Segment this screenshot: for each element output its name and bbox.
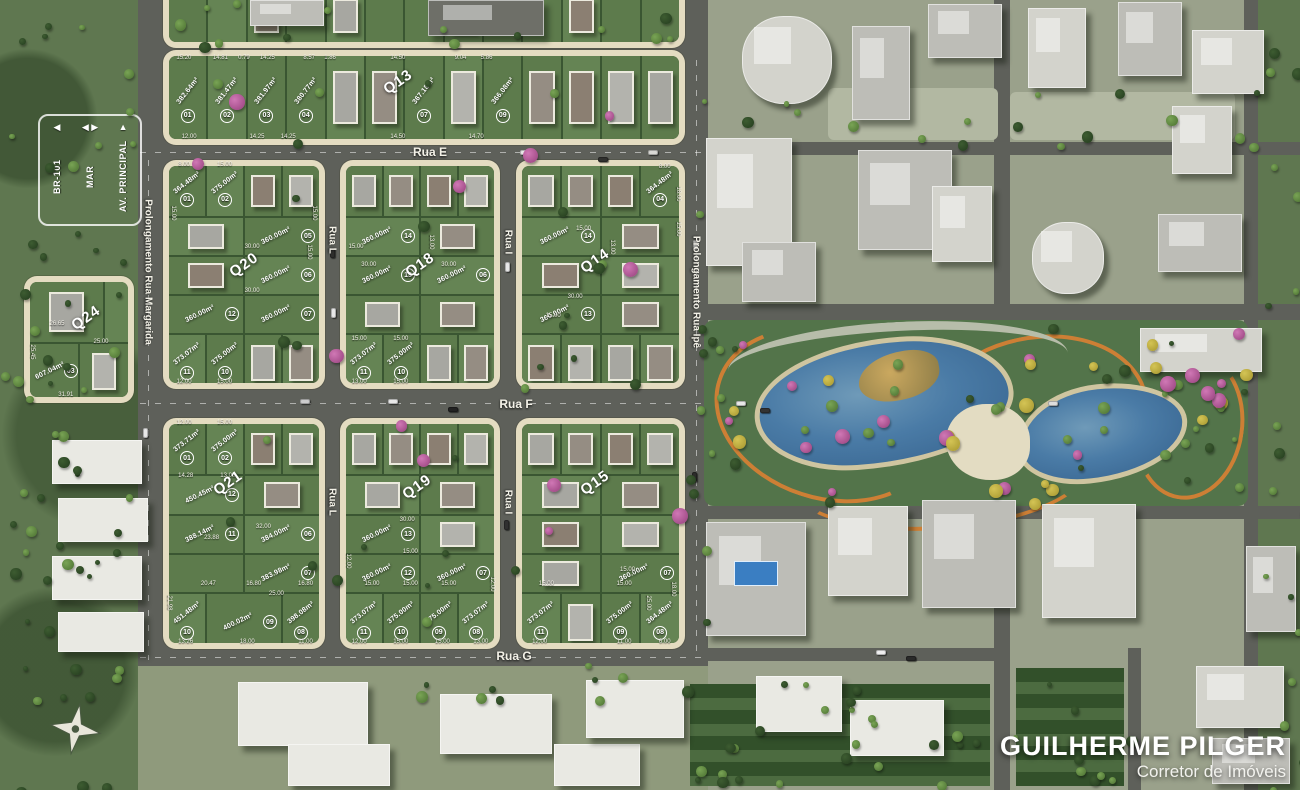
masterplan-map: ◀ BR-101 ◀ ▶ MAR ▲ AV. PRINCIPAL GUILHER… [0, 0, 1300, 790]
tree [1197, 415, 1208, 426]
house [389, 433, 413, 465]
tree [292, 195, 299, 202]
building [238, 682, 368, 746]
swimming-pool [734, 561, 777, 586]
lot [327, 0, 364, 42]
tree [841, 753, 852, 764]
building [1192, 30, 1264, 94]
car [448, 407, 458, 412]
lot: 373.07m²08 [459, 594, 495, 643]
tree [964, 118, 971, 125]
tree [1241, 389, 1247, 395]
house [528, 345, 554, 381]
lot-dimension: 23.88 [204, 535, 219, 541]
tree [42, 34, 48, 40]
lot-number: 09 [496, 109, 510, 123]
house [528, 433, 554, 465]
tree [1098, 402, 1110, 414]
house [647, 433, 673, 465]
tree [65, 300, 71, 306]
lot-area: 375.00m² [387, 341, 416, 366]
tree [1269, 48, 1280, 59]
building [288, 744, 390, 786]
lot [562, 335, 600, 383]
house [569, 0, 594, 33]
tree [26, 526, 36, 536]
lot-number: 09 [613, 626, 627, 640]
lot-dimension: 15.00 [311, 205, 317, 220]
house [251, 175, 276, 207]
tree [1181, 439, 1190, 448]
road [708, 648, 1010, 661]
tree [175, 19, 187, 31]
lot-area: 373.07m² [462, 601, 491, 626]
tree [794, 109, 801, 116]
lot-dimension: 16.80 [246, 581, 261, 587]
lot-area: 375.00m² [606, 601, 635, 626]
car [388, 399, 398, 404]
street-label: Prolongamento Rua Margarida [143, 199, 154, 345]
tree [776, 780, 784, 788]
lot-dimension: 15.00 [306, 244, 312, 259]
building [706, 522, 806, 636]
building [586, 680, 684, 738]
lot-dimension: 14.25 [260, 55, 275, 61]
lot-number: 04 [299, 109, 313, 123]
legend-label: MAR [85, 136, 95, 218]
house [352, 175, 376, 207]
tree [40, 253, 47, 260]
lot-dimension: 25.00 [269, 591, 284, 597]
building [932, 186, 992, 262]
house [568, 604, 594, 640]
tree [695, 777, 701, 783]
lot-dimension: 15.00 [352, 336, 367, 342]
lot: 375.00m²10 [207, 335, 243, 383]
block-grid: 364.48m²04360.00m²14360.00m²13 [522, 166, 679, 383]
lot-dimension: 15.00 [620, 567, 635, 573]
lot: 367.18m²07 [405, 56, 442, 139]
lot-dimension: 14.28 [178, 473, 193, 479]
lot [602, 0, 639, 42]
lot-dimension: 14.50 [390, 134, 405, 140]
building-roof [1036, 18, 1060, 52]
house [647, 345, 673, 381]
tree [826, 400, 838, 412]
tree [442, 550, 449, 557]
tree [846, 698, 856, 708]
tree [853, 686, 862, 695]
tree [697, 406, 705, 414]
block-grid: 607.04m²03 [30, 282, 128, 397]
lot-dimension: 15.00 [403, 549, 418, 555]
lot [562, 594, 600, 643]
lot-area: 367.18m² [412, 76, 437, 105]
tree [800, 442, 812, 454]
lot [602, 257, 680, 294]
street-label: Rua I [503, 230, 514, 254]
house [440, 302, 475, 327]
lot-dimension: 15.00 [364, 581, 379, 587]
street-label: Rua L [327, 488, 338, 516]
lot-dimension: 21.98 [166, 595, 172, 610]
house [389, 175, 413, 207]
lot-dimension: 14.70 [469, 134, 484, 140]
tree [514, 32, 521, 39]
tree [496, 696, 505, 705]
lot-dimension: 15.00 [435, 639, 450, 645]
lot: 373.07m²11 [346, 594, 382, 643]
lot-number: 02 [218, 193, 232, 207]
broker-title: Corretor de Imóveis [1000, 762, 1286, 782]
lot: 451.48m²10 [169, 594, 205, 643]
lot [642, 56, 679, 139]
house [365, 482, 400, 507]
lot: 375.00m²10 [384, 335, 420, 383]
tree [849, 707, 855, 713]
lot-dimension: 25.00 [93, 339, 108, 345]
tree [735, 776, 743, 784]
lot [522, 516, 600, 553]
tree [226, 517, 235, 526]
building-roof [1201, 38, 1231, 65]
block-grid [169, 0, 679, 42]
lot-area: 375.00m² [210, 170, 239, 195]
legend-item: ▲ AV. PRINCIPAL [118, 122, 128, 218]
house [608, 345, 634, 381]
lot-dimension: 12.00 [177, 420, 192, 426]
building [1028, 8, 1086, 88]
tree [667, 36, 673, 42]
tree [20, 489, 28, 497]
lot-number: 11 [534, 626, 548, 640]
tree [1071, 706, 1079, 714]
lot [459, 424, 495, 474]
lot-number: 05 [301, 229, 315, 243]
house [622, 224, 659, 249]
street-label: Rua I [503, 490, 514, 514]
lot: 373.07m²11 [346, 335, 382, 383]
house [451, 71, 476, 124]
lot-area: 375.00m² [387, 601, 416, 626]
tree [1254, 90, 1260, 96]
tree [58, 457, 69, 468]
tree [696, 766, 707, 777]
lot-dimension: 15.00 [546, 313, 561, 319]
lot-area: 375.00m² [210, 429, 239, 454]
lot-dimension: 0.79 [238, 55, 250, 61]
tree [396, 420, 407, 431]
lot-number: 12 [225, 307, 239, 321]
lot-area: 373.07m² [172, 341, 201, 366]
building [922, 500, 1016, 608]
lot-number: 07 [476, 566, 490, 580]
car [300, 399, 310, 404]
tree [730, 458, 742, 470]
lot [346, 296, 419, 333]
lot: 380.77m²04 [287, 56, 324, 139]
lot-number: 07 [660, 566, 674, 580]
lot [562, 424, 600, 474]
building-roof [940, 196, 965, 228]
lot-area: 375.00m² [210, 341, 239, 366]
car [760, 408, 770, 413]
lot: 364.48m²04 [641, 166, 679, 216]
lot-dimension: 18.00 [240, 639, 255, 645]
lot-number: 01 [181, 109, 195, 123]
tree [13, 376, 24, 387]
tree [424, 682, 429, 687]
building [250, 0, 324, 26]
legend-item: ◀ ▶ MAR [82, 122, 98, 218]
building [928, 4, 1002, 58]
lot [169, 218, 243, 255]
lot [641, 424, 679, 474]
lot-area: 400.02m² [222, 612, 253, 632]
tree [9, 134, 14, 139]
lot: 373.71m²01 [169, 424, 205, 474]
block [163, 0, 685, 48]
lot-number: 11 [357, 626, 371, 640]
tree [33, 697, 41, 705]
tree [863, 428, 873, 438]
car [648, 150, 658, 155]
building [58, 612, 144, 652]
building-roof [1126, 12, 1153, 43]
lot-dimension: 30.00 [245, 288, 260, 294]
street-label: Prolongamento Rua Ipê [691, 236, 702, 348]
house [622, 482, 659, 507]
lot [366, 0, 403, 42]
lot-dimension: 15.00 [217, 420, 232, 426]
lot-area: 373.07m² [526, 601, 555, 626]
lot: 607.04m²03 [30, 344, 78, 397]
lot: 398.08m²08 [283, 594, 319, 643]
lot-dimension: 16.80 [298, 581, 313, 587]
lot-number: 02 [220, 109, 234, 123]
lot-number: 09 [432, 626, 446, 640]
lot-dimension: 15.00 [217, 162, 232, 168]
house [622, 522, 659, 547]
branding: GUILHERME PILGER Corretor de Imóveis [1000, 731, 1286, 782]
tree [283, 34, 291, 42]
car [143, 428, 148, 438]
tree [1205, 443, 1214, 452]
lot-dimension: 30.00 [568, 294, 583, 300]
house [608, 433, 634, 465]
tree [1288, 594, 1293, 599]
lot-number: 08 [469, 626, 483, 640]
tree [1162, 391, 1168, 397]
lot: 373.07m²11 [169, 335, 205, 383]
tree [77, 781, 89, 790]
compass-icon [43, 698, 106, 765]
tree [598, 26, 605, 33]
lot-area: 451.48m² [172, 601, 201, 626]
tree [449, 39, 460, 50]
lot-dimension: 15.00 [393, 639, 408, 645]
lot-dimension: 30.00 [400, 517, 415, 523]
lot [384, 166, 420, 216]
tree [52, 431, 58, 437]
lot-dimension: 32.00 [256, 524, 271, 530]
tree [1271, 164, 1278, 171]
tree [62, 559, 73, 570]
lot-number: 13 [401, 527, 415, 541]
lot-dimension: 13.00 [352, 379, 367, 385]
lot: 360.00m²07 [421, 555, 494, 592]
building [1196, 666, 1284, 728]
tree [1233, 328, 1245, 340]
tree [1102, 374, 1112, 384]
tree [660, 13, 672, 25]
building [1118, 2, 1182, 76]
lot-number: 01 [180, 193, 194, 207]
building-roof [860, 38, 884, 78]
house [648, 71, 673, 124]
lot-dimension: 8.57 [303, 55, 315, 61]
tree [58, 431, 69, 442]
tree [871, 721, 878, 728]
lot: 375.00m²09 [602, 594, 640, 643]
tree [1201, 386, 1215, 400]
lot-dimension: 15.00 [170, 205, 176, 220]
lot [602, 56, 639, 139]
lot-dimension: 11.00 [298, 639, 313, 645]
lot-dimension: 13.00 [428, 235, 434, 250]
tree [215, 39, 224, 48]
building [742, 242, 816, 302]
tree [1280, 721, 1289, 730]
tree [787, 381, 797, 391]
tree [686, 475, 696, 485]
lot-area: 360.00m² [539, 226, 570, 246]
tree [991, 404, 1001, 414]
tree [452, 455, 458, 461]
lot-number: 03 [259, 109, 273, 123]
tree [204, 5, 210, 11]
house [251, 345, 276, 381]
tree [332, 575, 343, 586]
house [289, 433, 314, 465]
building [1042, 504, 1136, 618]
house [92, 353, 115, 391]
tree [989, 484, 1002, 497]
lot-area: 364.48m² [172, 170, 201, 195]
lot [346, 424, 382, 474]
lot: 384.00m²06 [245, 516, 319, 553]
road-centerline [696, 60, 697, 660]
lot [346, 166, 382, 216]
tree [1274, 448, 1285, 459]
building [828, 506, 908, 596]
tree [45, 163, 55, 173]
house [289, 345, 314, 381]
lot-dimension: 14.50 [390, 55, 405, 61]
lot-area: 382.64m² [175, 76, 200, 105]
car [1048, 401, 1058, 406]
house [608, 175, 634, 207]
tree [10, 568, 21, 579]
direction-arrow-icon: ◀ [53, 122, 60, 133]
tree [1019, 398, 1034, 413]
tree [547, 478, 561, 492]
tree [1293, 192, 1300, 202]
lot: 375.00m²02 [207, 166, 243, 216]
road [708, 304, 1300, 320]
tree [1082, 131, 1093, 142]
tree [19, 38, 26, 45]
house [529, 71, 554, 124]
lot [445, 56, 482, 139]
car [331, 308, 336, 318]
tree [292, 341, 301, 350]
house [464, 345, 488, 381]
tree [877, 415, 890, 428]
lot-dimension: 18.00 [670, 581, 676, 596]
tree [278, 336, 290, 348]
building-roof [1054, 518, 1094, 566]
lot-number: 10 [218, 366, 232, 380]
building [1246, 546, 1296, 632]
lot: 366.08m²09 [484, 56, 521, 139]
lot-dimension: 1.86 [324, 55, 336, 61]
lot-dimension: 15.00 [217, 379, 232, 385]
house [622, 302, 659, 327]
tree [1089, 362, 1098, 371]
tree [63, 363, 71, 371]
house [464, 433, 488, 465]
house [427, 345, 451, 381]
lot-area: 360.00m² [260, 304, 291, 324]
tree [708, 337, 717, 346]
lot-area: 381.97m² [254, 76, 279, 105]
tree [571, 355, 577, 361]
building-roof [443, 5, 492, 20]
lot-number: 11 [357, 366, 371, 380]
building [852, 26, 910, 120]
car [876, 650, 886, 655]
lot [522, 166, 560, 216]
house [352, 433, 376, 465]
block-grid: 382.64m²01381.47m²02381.97m²03380.77m²04… [169, 56, 679, 139]
tree [70, 664, 81, 675]
tree [199, 42, 211, 54]
lot: 360.00m²14 [522, 218, 600, 255]
building-roof [260, 4, 291, 14]
building-roof [938, 11, 969, 33]
house [264, 482, 300, 507]
tree [1, 372, 10, 381]
direction-arrow-icon: ▲ [119, 122, 128, 132]
road-centerline [140, 403, 708, 404]
lot-dimension: 12.00 [177, 379, 192, 385]
house [427, 175, 451, 207]
lot-number: 01 [180, 451, 194, 465]
lot-number: 09 [263, 615, 277, 629]
lot: 381.97m²03 [248, 56, 285, 139]
lot: 375.00m²10 [384, 594, 420, 643]
lot-area: 383.98m² [260, 563, 291, 583]
block-Q20: 364.48m²01375.00m²02360.00m²05360.00m²06… [163, 160, 325, 389]
lot [366, 56, 403, 139]
lot: 360.00m²12 [169, 296, 243, 333]
tree [453, 180, 466, 193]
lot [421, 516, 494, 553]
lot-dimension: 15.20 [176, 55, 191, 61]
house [528, 175, 554, 207]
tree [716, 346, 723, 353]
